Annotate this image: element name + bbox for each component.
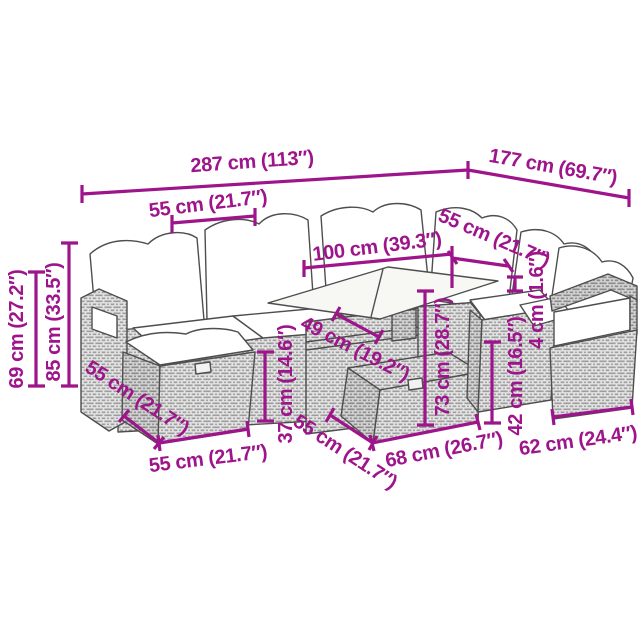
dim-label-armrest-height: 69 cm (27.2″) [7, 270, 27, 389]
armrest-panel [81, 289, 127, 431]
dim-label-back-height: 85 cm (33.5″) [44, 263, 64, 382]
dim-label-cushion-thickness: 4 cm (1.6″) [527, 251, 547, 348]
product-dimension-diagram: 287 cm (113″) 177 cm (69.7″) 55 cm (21.7… [0, 0, 640, 640]
ottoman-notch [408, 378, 423, 390]
ottoman-notch [195, 362, 211, 374]
dim-label-table-height: 73 cm (28.7″) [433, 298, 453, 417]
left-armrest [81, 289, 127, 431]
dim-label-seat-height: 42 cm (16.5″) [506, 317, 526, 436]
